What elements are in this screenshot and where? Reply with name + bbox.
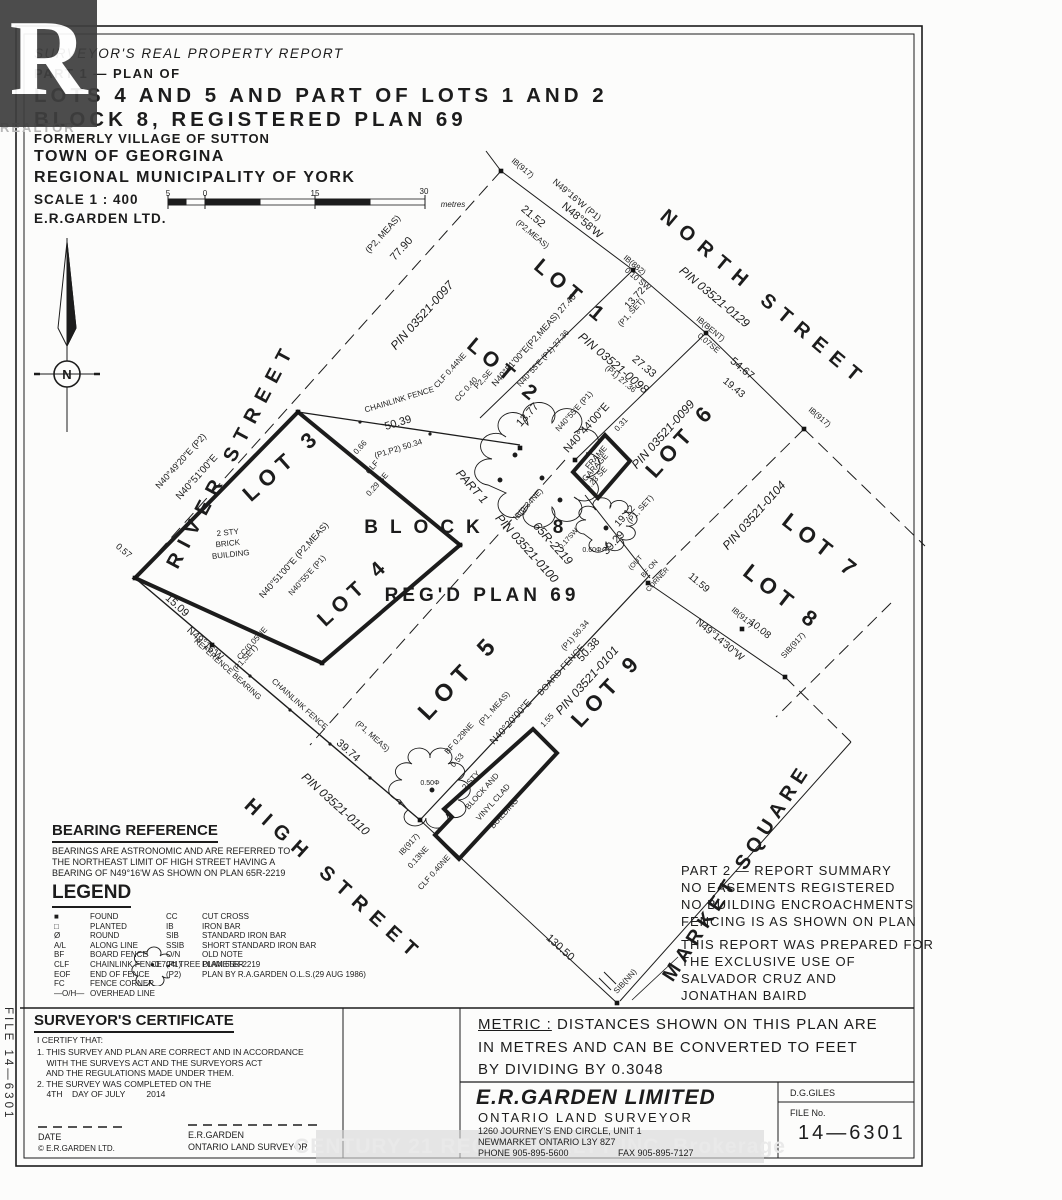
survey-marker-icon <box>418 818 423 823</box>
part2-summary: PART 2 — REPORT SUMMARYNO EASEMENTS REGI… <box>681 862 917 930</box>
legend-symbol: □ <box>54 922 90 932</box>
legend-label: OLD NOTE <box>202 950 243 960</box>
survey-marker-icon <box>499 169 504 174</box>
plan-label: NORTH STREET <box>656 205 872 391</box>
survey-marker-icon <box>740 627 745 632</box>
plan-label: CHAINLINK FENCE <box>364 385 436 415</box>
plan-label: BLOCK <box>364 517 492 538</box>
company-name: E.R.GARDEN LIMITED <box>476 1086 716 1110</box>
text-line: FENCING IS AS SHOWN ON PLAN <box>681 913 917 930</box>
text-line: NO BUILDING ENCROACHMENTS <box>681 896 917 913</box>
copyright-line: © E.R.GARDEN LTD. <box>38 1144 115 1153</box>
legend-symbol: —O/H— <box>54 989 90 999</box>
legend-right-column: CCCUT CROSSIBIRON BARSIBSTANDARD IRON BA… <box>166 912 396 979</box>
plan-label: 15 <box>311 189 320 198</box>
legend-symbol: Ø <box>54 931 90 941</box>
text-line: JONATHAN BAIRD <box>681 987 934 1004</box>
plan-label: LOT 1 <box>529 254 612 329</box>
company-fax: FAX 905-895-7127 <box>618 1148 694 1158</box>
survey-marker-icon <box>320 661 325 666</box>
legend-symbol: O/N <box>166 950 202 960</box>
legend-label: PLANTED <box>90 922 127 932</box>
plan-title-lots: LOTS 4 AND 5 AND PART OF LOTS 1 AND 2 <box>34 84 608 108</box>
legend-label: FOUND <box>90 912 118 922</box>
scale-label: SCALE 1 : 400 <box>34 192 139 207</box>
metric-line2: IN METRES AND CAN BE CONVERTED TO FEET <box>478 1037 878 1060</box>
plan-label: 0 <box>203 189 208 198</box>
plan-label: REG'D PLAN 69 <box>385 585 580 606</box>
legend-row: (P2)PLAN BY R.A.GARDEN O.L.S.(29 AUG 198… <box>166 970 396 980</box>
legend-label: IRON BAR <box>202 922 241 932</box>
survey-marker-icon <box>518 446 523 451</box>
metric-label: METRIC : <box>478 1016 552 1033</box>
legend-symbol: CC <box>166 912 202 922</box>
legend-symbol: (P2) <box>166 970 202 980</box>
legend-row: ØROUND <box>54 931 164 941</box>
plan-label: metres <box>441 200 465 209</box>
certificate-intro: I CERTIFY THAT: <box>37 1035 103 1046</box>
survey-marker-icon <box>133 576 138 581</box>
date-label: DATE <box>38 1132 61 1142</box>
plan-label: LOT 4 <box>313 553 394 631</box>
text-line: PART 2 — REPORT SUMMARY <box>681 862 917 879</box>
realtor-logo-icon: R <box>0 0 97 127</box>
legend-row: O/NOLD NOTE <box>166 950 396 960</box>
plan-label: 2 STY <box>216 527 240 538</box>
plan-label: PIN 03521-0104 <box>720 478 789 553</box>
plan-label: IB(0.34NE) <box>512 486 545 522</box>
legend-row: SIBSTANDARD IRON BAR <box>166 931 396 941</box>
legend-label: ROUND <box>90 931 119 941</box>
text-line: THE EXCLUSIVE USE OF <box>681 953 934 970</box>
legend-label: PLAN BY R.A.GARDEN O.L.S.(29 AUG 1986) <box>202 970 366 980</box>
metric-note: METRIC : DISTANCES SHOWN ON THIS PLAN AR… <box>478 1014 878 1082</box>
survey-marker-icon <box>296 410 301 415</box>
legend-label: CUT CROSS <box>202 912 249 922</box>
legend-symbol: CLF <box>54 960 90 970</box>
legend-row: □PLANTED <box>54 922 164 932</box>
text-line: THIS REPORT WAS PREPARED FOR <box>681 936 934 953</box>
plan-label: (P1,P2) 50.34 <box>373 437 423 460</box>
survey-marker-icon <box>631 268 636 273</box>
plan-label: 0.50Φ <box>420 780 440 787</box>
legend-symbol: SIB <box>166 931 202 941</box>
plan-label: CHAINLINK FENCE <box>270 677 330 732</box>
plan-label: 1.55 <box>539 711 556 729</box>
legend-label: STANDARD IRON BAR <box>202 931 286 941</box>
legend-tree-note: ●0.70Φ TREE DIAMETER <box>150 960 244 969</box>
plan-label: SIB(917) <box>779 630 807 660</box>
plan-label: 10.08 <box>746 617 773 642</box>
region-line: REGIONAL MUNICIPALITY OF YORK <box>34 169 355 187</box>
plan-label: SIB(NN) <box>612 967 639 995</box>
realtor-r: R <box>10 0 88 118</box>
certificate-items: 1. THIS SURVEY AND PLAN ARE CORRECT AND … <box>37 1047 304 1100</box>
legend-row: SSIBSHORT STANDARD IRON BAR <box>166 941 396 951</box>
plan-label: PIN 03521-0110 <box>299 770 373 839</box>
signer-name: E.R.GARDEN <box>188 1130 244 1140</box>
plan-label: 0.57 <box>114 541 134 560</box>
firm-name: E.R.GARDEN LTD. <box>34 211 167 226</box>
part2-prepared-for: THIS REPORT WAS PREPARED FORTHE EXCLUSIV… <box>681 936 934 1004</box>
company-phone: PHONE 905-895-5600 <box>478 1148 569 1158</box>
legend-symbol: A/L <box>54 941 90 951</box>
plan-label: IB(917) <box>807 405 833 429</box>
plan-label: N49°14'30"W <box>693 617 746 664</box>
company-title: ONTARIO LAND SURVEYOR <box>478 1110 693 1125</box>
legend-row: —O/H—OVERHEAD LINE <box>54 989 164 999</box>
plan-label: N <box>62 367 71 382</box>
checker-name: D.G.GILES <box>790 1088 835 1098</box>
legend-symbol: ■ <box>54 912 90 922</box>
plan-label: 30 <box>420 187 429 196</box>
text-line: AND THE REGULATIONS MADE UNDER THEM. <box>37 1068 304 1079</box>
survey-marker-icon <box>615 1001 620 1006</box>
legend-label: SHORT STANDARD IRON BAR <box>202 941 316 951</box>
plan-label: BUILDING <box>211 548 250 561</box>
survey-marker-icon <box>704 331 709 336</box>
text-line: SALVADOR CRUZ AND <box>681 970 934 987</box>
signer-title: ONTARIO LAND SURVEYOR <box>188 1142 308 1152</box>
plan-title-block8: BLOCK 8, REGISTERED PLAN 69 <box>34 108 467 132</box>
text-line: 1. THIS SURVEY AND PLAN ARE CORRECT AND … <box>37 1047 304 1058</box>
legend-symbol: FC <box>54 979 90 989</box>
file-no-value: 14—6301 <box>798 1122 906 1145</box>
plan-label: 5 <box>166 189 171 198</box>
text-line: THE NORTHEAST LIMIT OF HIGH STREET HAVIN… <box>52 857 290 868</box>
plan-label: IB(917) <box>510 156 536 180</box>
plan-label: PART 1 <box>453 466 491 506</box>
legend-symbol: BF <box>54 950 90 960</box>
plan-label: CLF <box>364 459 381 476</box>
plan-label: (P1, MEAS) <box>354 719 392 754</box>
plan-label: LOT 7 <box>778 508 866 585</box>
legend-row: IBIRON BAR <box>166 922 396 932</box>
text-line: BEARINGS ARE ASTRONOMIC AND ARE REFERRED… <box>52 846 290 857</box>
bearing-reference-heading: BEARING REFERENCE <box>52 822 218 843</box>
metric-line3: BY DIVIDING BY 0.3048 <box>478 1059 878 1082</box>
legend-row: ■FOUND <box>54 912 164 922</box>
legend-symbol: EOF <box>54 970 90 980</box>
plan-label: 130.50 <box>543 932 576 963</box>
bearing-reference-text: BEARINGS ARE ASTRONOMIC AND ARE REFERRED… <box>52 846 290 879</box>
survey-sheet: RIVER STREETNORTH STREETHIGH STREETMARKE… <box>0 0 1062 1200</box>
company-addr2: NEWMARKET ONTARIO L3Y 8Z7 <box>478 1137 616 1147</box>
plan-label: 0.66 <box>352 438 369 456</box>
text-line: 4TH DAY OF JULY 2014 <box>37 1089 304 1100</box>
certificate-heading: SURVEYOR'S CERTIFICATE <box>34 1012 234 1033</box>
company-addr1: 1260 JOURNEY'S END CIRCLE, UNIT 1 <box>478 1126 642 1136</box>
plan-label: CLF 0.44NE <box>432 351 468 390</box>
plan-label: 19.43 <box>720 376 747 401</box>
plan-label: PIN 03521-0097 <box>388 277 458 352</box>
legend-symbol: SSIB <box>166 941 202 951</box>
survey-marker-icon <box>458 543 463 548</box>
plan-label: 0.60Φ <box>582 547 602 554</box>
legend-row: CCCUT CROSS <box>166 912 396 922</box>
north-arrow-icon <box>34 238 100 432</box>
survey-marker-icon <box>573 458 578 463</box>
text-line: BEARING OF N49°16'W AS SHOWN ON PLAN 65R… <box>52 868 290 879</box>
town-line: TOWN OF GEORGINA <box>34 148 225 166</box>
plan-label: (OUT <box>628 554 645 572</box>
plan-label: 77.90 <box>388 235 415 263</box>
plan-label: BF 0.29NE <box>443 721 476 756</box>
metric-line1: DISTANCES SHOWN ON THIS PLAN ARE <box>552 1016 878 1033</box>
file-side-label: FILE 14—6301 <box>2 1007 14 1120</box>
plan-label: BRICK <box>215 538 241 550</box>
plan-label: 50.39 <box>383 413 413 433</box>
text-line: NO EASEMENTS REGISTERED <box>681 879 917 896</box>
file-no-label: FILE No. <box>790 1108 826 1118</box>
survey-marker-icon <box>802 427 807 432</box>
text-line: 2. THE SURVEY WAS COMPLETED ON THE <box>37 1079 304 1090</box>
survey-marker-icon <box>646 581 651 586</box>
survey-marker-icon <box>210 643 215 648</box>
plan-label: 0.31 <box>613 415 630 433</box>
text-line: WITH THE SURVEYS ACT AND THE SURVEYORS A… <box>37 1058 304 1069</box>
legend-heading: LEGEND <box>52 882 131 908</box>
survey-marker-icon <box>783 675 788 680</box>
legend-label: OVERHEAD LINE <box>90 989 155 999</box>
plan-label: 11.59 <box>686 571 712 595</box>
legend-symbol: IB <box>166 922 202 932</box>
